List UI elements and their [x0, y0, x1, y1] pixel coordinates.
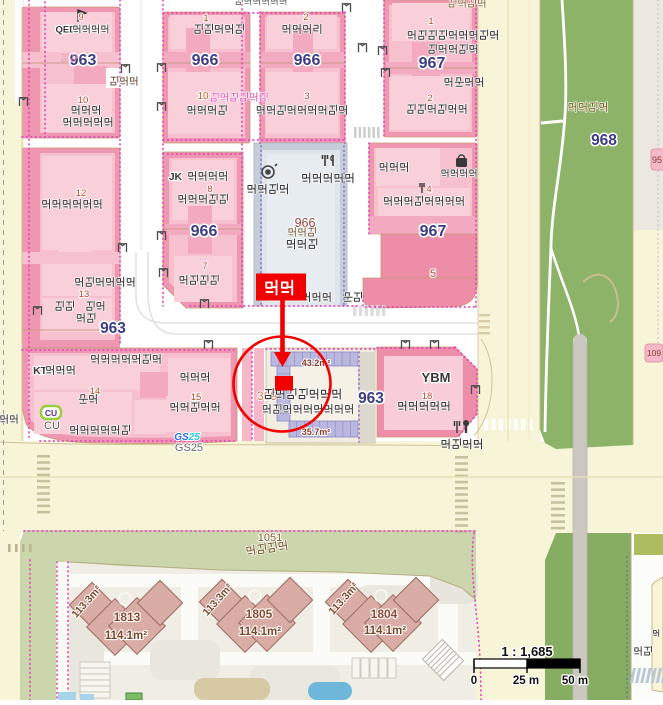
svg-text:963: 963: [100, 320, 126, 337]
svg-text:1: 1: [203, 13, 208, 24]
svg-text:3: 3: [304, 91, 309, 102]
svg-text:963: 963: [358, 390, 384, 407]
svg-text:GS25: GS25: [175, 442, 203, 454]
svg-text:7: 7: [202, 261, 207, 272]
svg-text:5: 5: [430, 268, 436, 280]
svg-text:12: 12: [76, 188, 87, 199]
svg-text:109: 109: [647, 348, 661, 358]
svg-text:966: 966: [294, 52, 321, 69]
svg-text:50 m: 50 m: [562, 675, 588, 687]
svg-text:0: 0: [471, 675, 477, 687]
svg-text:966: 966: [192, 52, 219, 69]
svg-text:1: 1: [428, 16, 433, 27]
svg-text:2: 2: [303, 12, 308, 23]
svg-text:9: 9: [78, 12, 83, 23]
svg-text:114.1m²: 114.1m²: [364, 625, 406, 637]
svg-text:YBM: YBM: [422, 370, 451, 385]
svg-text:967: 967: [419, 55, 446, 72]
svg-text:1 : 1,685: 1 : 1,685: [501, 644, 552, 659]
svg-text:35.7m²: 35.7m²: [302, 427, 331, 437]
svg-text:114.1m²: 114.1m²: [105, 630, 147, 642]
svg-text:1804: 1804: [371, 607, 398, 621]
svg-text:13: 13: [79, 289, 90, 300]
svg-text:1805: 1805: [246, 607, 273, 621]
svg-text:CU: CU: [45, 408, 57, 418]
svg-text:966: 966: [191, 223, 218, 240]
svg-text:968: 968: [591, 132, 617, 149]
svg-text:10: 10: [197, 91, 209, 102]
svg-text:2: 2: [427, 93, 432, 104]
svg-text:8: 8: [207, 184, 212, 195]
svg-text:JK: JK: [169, 171, 183, 183]
svg-text:967: 967: [420, 223, 447, 240]
svg-text:1813: 1813: [114, 610, 141, 624]
svg-text:95: 95: [652, 155, 662, 165]
svg-text:25 m: 25 m: [513, 675, 539, 687]
svg-text:114.1m²: 114.1m²: [239, 626, 281, 638]
svg-text:4: 4: [426, 184, 431, 195]
svg-text:CU: CU: [44, 420, 60, 432]
